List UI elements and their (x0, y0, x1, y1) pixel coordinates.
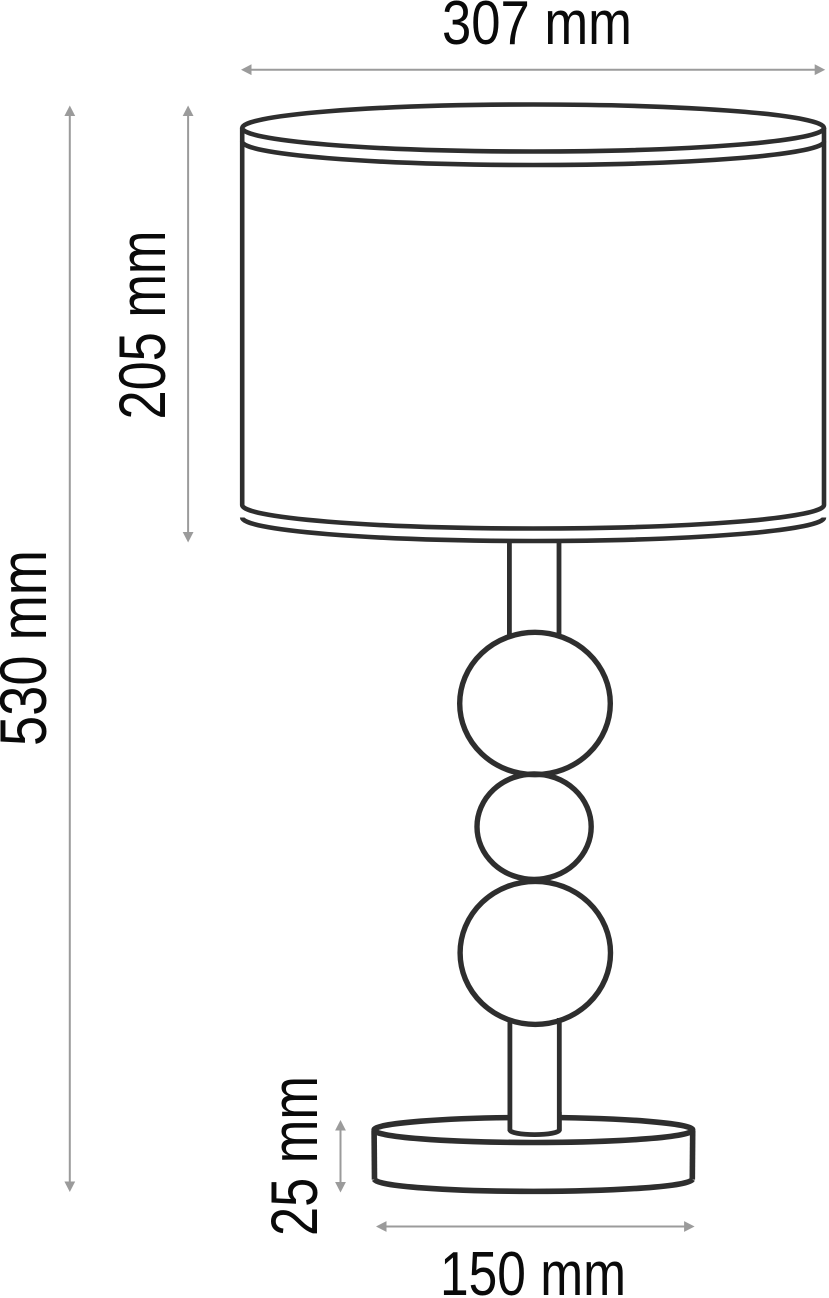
svg-text:205 mm: 205 mm (105, 231, 179, 420)
svg-text:150 mm: 150 mm (440, 1240, 626, 1298)
svg-text:25 mm: 25 mm (257, 1076, 331, 1236)
svg-text:307 mm: 307 mm (442, 0, 632, 58)
svg-text:530 mm: 530 mm (0, 550, 60, 746)
